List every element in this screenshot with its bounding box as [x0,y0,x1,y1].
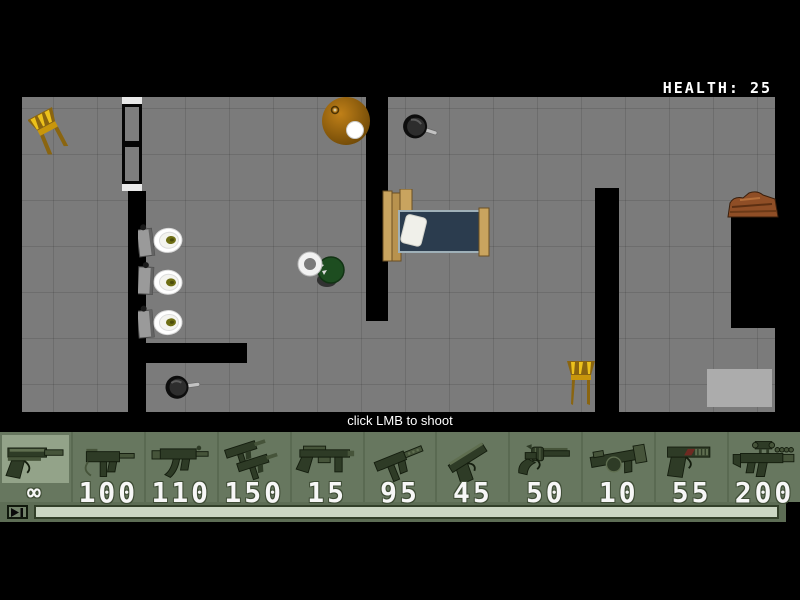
frying-pan [401,114,441,142]
play-icon [11,508,24,517]
wall-column-right [731,216,775,328]
toilet [138,221,188,261]
health-label: HEALTH: [663,79,740,97]
chair [28,105,72,161]
health-display: HEALTH:25 [663,79,772,97]
ammo-count: 200 [715,476,800,509]
weapon-slot-scoped-rifle[interactable]: 200 [729,432,800,502]
frying-pan [163,373,203,401]
map-area[interactable] [22,97,775,412]
weapon-bar: ∞ 100 [0,430,800,502]
bed [381,189,491,265]
player-character [297,249,351,291]
door-panel [122,104,142,144]
rug [707,369,772,407]
game-screen: HEALTH:25 [0,0,800,600]
play-button[interactable] [7,505,28,519]
toilet [138,262,188,302]
hint-text: click LMB to shoot [347,413,453,428]
wall-bottom-horizontal [140,343,247,363]
chair [562,359,600,409]
wood-pile [726,191,780,219]
health-value: 25 [750,79,772,97]
door-cap-bottom [122,184,142,191]
door-cap-top [122,97,142,104]
door-panel [122,144,142,184]
hint-band: click LMB to shoot [0,412,800,430]
round-table [321,97,371,147]
toilet [138,303,188,343]
